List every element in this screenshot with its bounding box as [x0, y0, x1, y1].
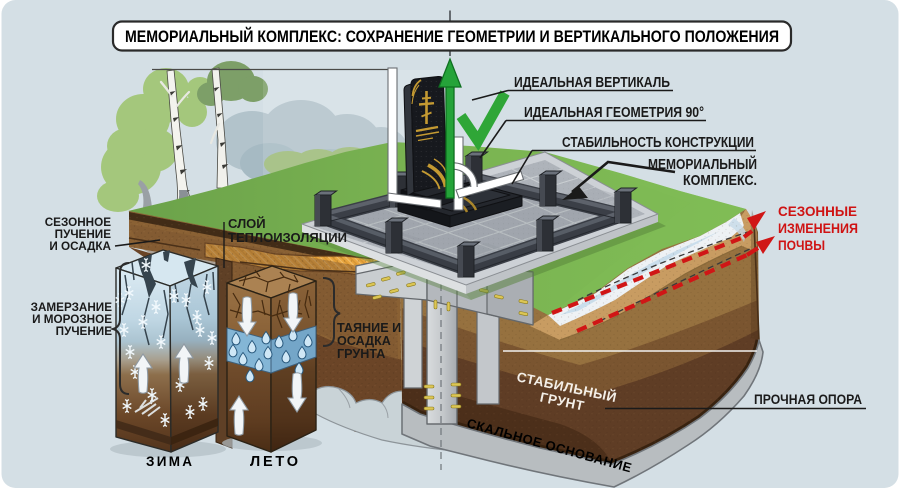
svg-text:ПОЧВЫ: ПОЧВЫ: [778, 238, 825, 254]
svg-text:И ОСАДКА: И ОСАДКА: [49, 240, 111, 253]
svg-text:ИДЕАЛЬНАЯ ВЕРТИКАЛЬ: ИДЕАЛЬНАЯ ВЕРТИКАЛЬ: [514, 75, 670, 91]
svg-text:ИДЕАЛЬНАЯ ГЕОМЕТРИЯ 90°: ИДЕАЛЬНАЯ ГЕОМЕТРИЯ 90°: [524, 105, 704, 121]
svg-text:ЗИМА: ЗИМА: [146, 454, 192, 469]
svg-text:СЕЗОННЫЕ: СЕЗОННЫЕ: [778, 204, 857, 220]
svg-text:ИЗМЕНЕНИЯ: ИЗМЕНЕНИЯ: [778, 221, 858, 237]
svg-text:ГРУНТА: ГРУНТА: [337, 347, 385, 361]
svg-text:ОСАДКА: ОСАДКА: [337, 334, 391, 348]
svg-text:ТЕПЛОИЗОЛЯЦИИ: ТЕПЛОИЗОЛЯЦИИ: [228, 230, 347, 245]
svg-text:ТАЯНИЕ И: ТАЯНИЕ И: [337, 321, 401, 335]
svg-text:КОМПЛЕКС.: КОМПЛЕКС.: [683, 172, 757, 189]
svg-text:ПУЧЕНИЕ: ПУЧЕНИЕ: [56, 325, 113, 338]
svg-text:СТАБИЛЬНОСТЬ КОНСТРУКЦИИ: СТАБИЛЬНОСТЬ КОНСТРУКЦИИ: [562, 135, 754, 151]
svg-text:ПРОЧНАЯ ОПОРА: ПРОЧНАЯ ОПОРА: [754, 392, 862, 407]
svg-text:МЕМОРИАЛЬНЫЙ КОМПЛЕКС: СОХРАНЕ: МЕМОРИАЛЬНЫЙ КОМПЛЕКС: СОХРАНЕНИЕ ГЕОМЕТ…: [125, 27, 779, 46]
svg-text:СЛОЙ: СЛОЙ: [228, 216, 266, 231]
